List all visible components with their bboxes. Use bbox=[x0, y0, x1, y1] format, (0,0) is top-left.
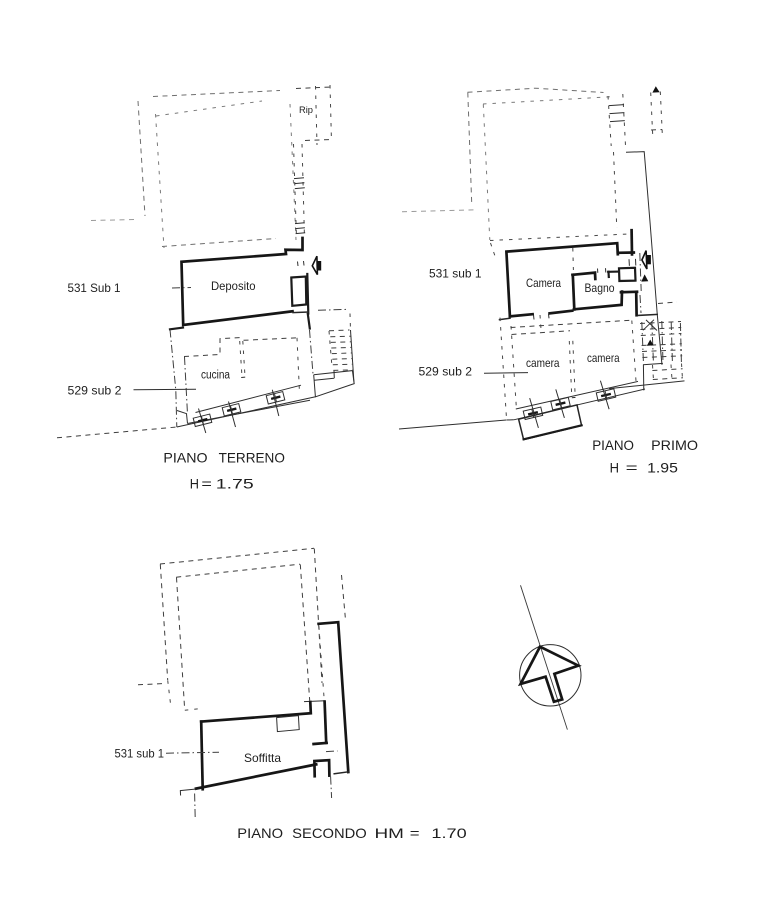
svg-text:531 sub 1: 531 sub 1 bbox=[115, 747, 165, 761]
svg-text:529 sub 2: 529 sub 2 bbox=[419, 365, 473, 379]
svg-text:531 sub 1: 531 sub 1 bbox=[429, 267, 482, 281]
svg-text:529 sub 2: 529 sub 2 bbox=[68, 384, 122, 398]
svg-text:camera: camera bbox=[587, 351, 620, 365]
svg-text:531 Sub 1: 531 Sub 1 bbox=[68, 281, 121, 295]
svg-text:Bagno: Bagno bbox=[585, 281, 615, 295]
svg-text:Deposito: Deposito bbox=[211, 279, 256, 293]
svg-text:=: = bbox=[201, 476, 212, 492]
svg-text:HM: HM bbox=[375, 825, 404, 841]
svg-text:Camera: Camera bbox=[526, 276, 561, 290]
svg-text:=: = bbox=[410, 825, 420, 841]
svg-text:1.75: 1.75 bbox=[216, 476, 254, 492]
svg-text:cucina: cucina bbox=[201, 370, 231, 382]
svg-text:camera: camera bbox=[526, 356, 560, 370]
svg-text:1.70: 1.70 bbox=[431, 825, 467, 841]
svg-text:H: H bbox=[610, 460, 619, 476]
svg-text:TERRENO: TERRENO bbox=[219, 450, 285, 466]
svg-text:=: = bbox=[626, 460, 638, 476]
svg-text:H: H bbox=[190, 476, 199, 492]
svg-text:PRIMO: PRIMO bbox=[651, 437, 698, 453]
svg-text:1.95: 1.95 bbox=[647, 460, 678, 476]
svg-text:Soffitta: Soffitta bbox=[244, 751, 281, 765]
svg-text:PIANO: PIANO bbox=[237, 825, 283, 841]
svg-text:Rip: Rip bbox=[299, 105, 313, 116]
svg-text:PIANO: PIANO bbox=[592, 437, 634, 453]
svg-text:PIANO: PIANO bbox=[163, 450, 207, 466]
svg-text:SECONDO: SECONDO bbox=[292, 825, 367, 841]
